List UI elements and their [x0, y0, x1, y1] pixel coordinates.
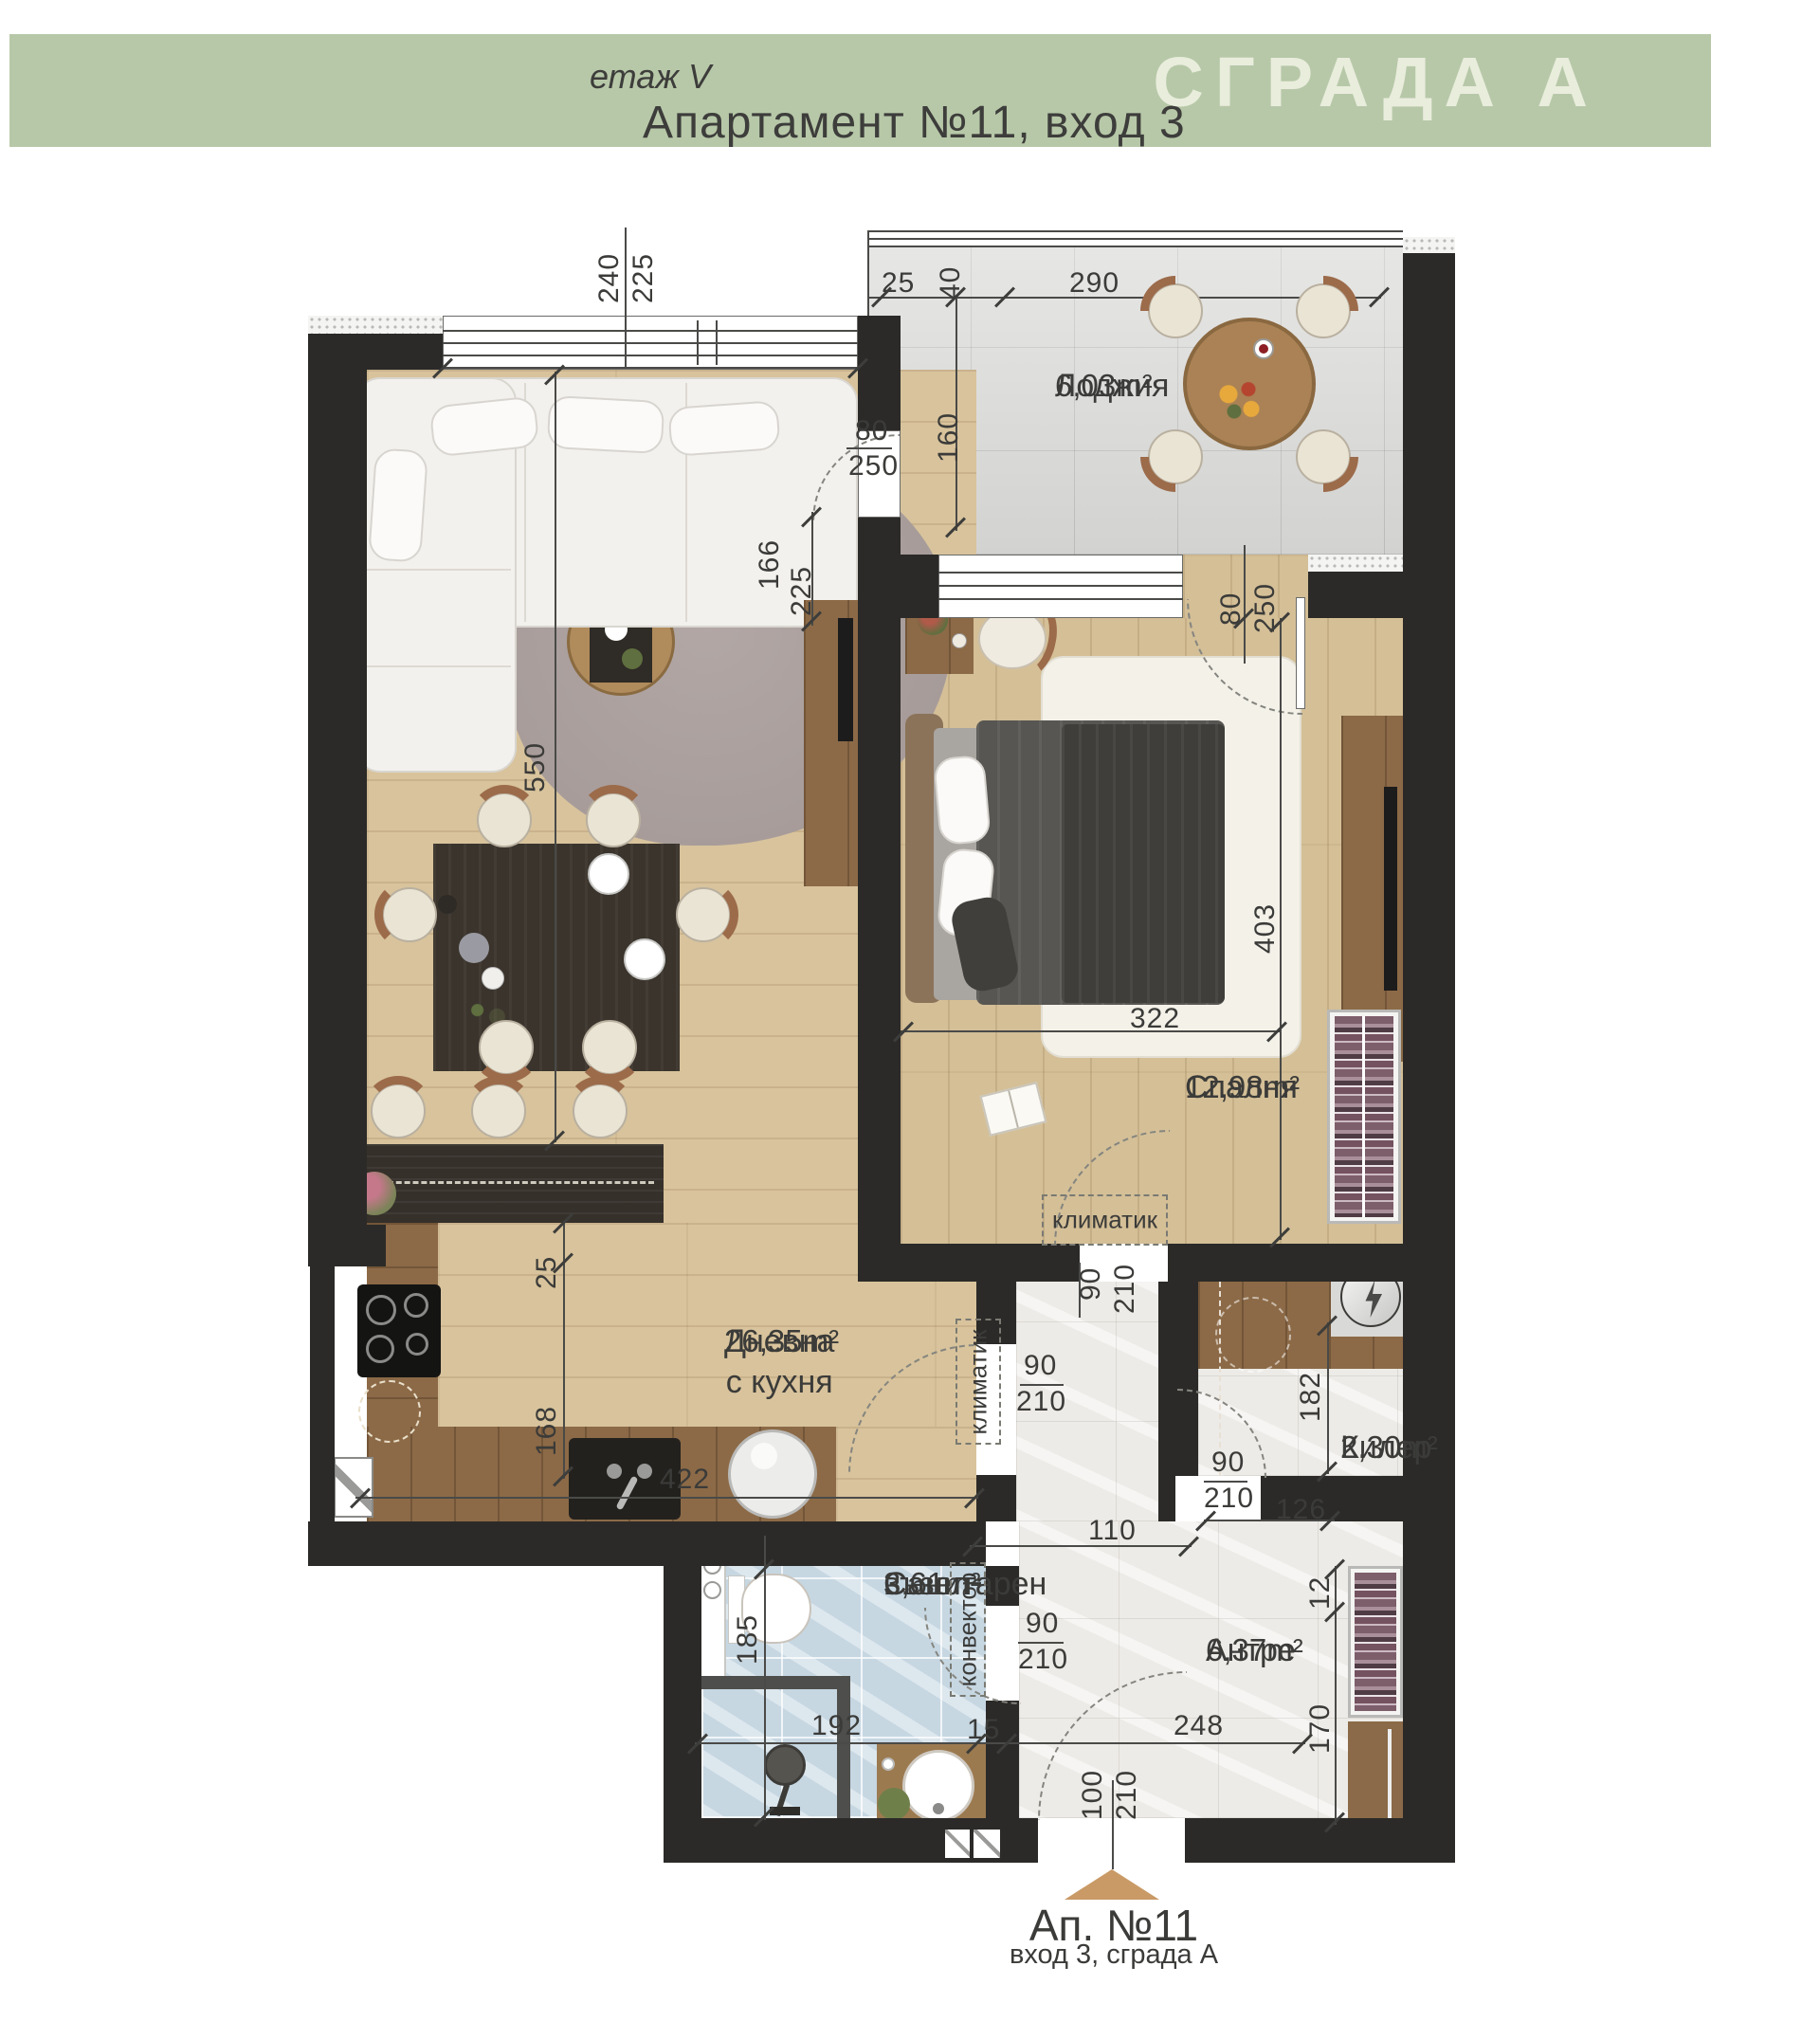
room-area: 6,37m²	[1206, 1630, 1303, 1671]
dimension-label: 25	[533, 1256, 561, 1289]
wine	[1259, 344, 1268, 354]
ac-bedroom-box: климатик	[1042, 1194, 1168, 1246]
dimension-label: 12	[1306, 1576, 1335, 1610]
room-area: 2,30m²	[1340, 1428, 1438, 1468]
dimension-label: 210	[1016, 1388, 1066, 1416]
tv-bedroom	[1384, 787, 1397, 991]
dimension-label: 185	[734, 1614, 762, 1665]
room-area: 6,03m²	[1055, 366, 1153, 407]
sink-knob	[637, 1464, 652, 1479]
chair	[573, 1083, 628, 1138]
ln-shape	[901, 1030, 1280, 1032]
sofa-seam	[361, 569, 511, 571]
wall-left	[308, 370, 367, 1225]
dimension-label: 192	[811, 1712, 862, 1740]
loggia-railing	[867, 238, 1403, 240]
dimension-label: 90	[1026, 1610, 1059, 1638]
wall-kitchen-bath	[308, 1521, 986, 1566]
dining-cup	[482, 967, 504, 990]
closet-decor	[1215, 1297, 1291, 1373]
dimension-label: 248	[1174, 1712, 1224, 1740]
entrance-sub-label: вход 3, сграда А	[1010, 1939, 1218, 1971]
chair	[676, 887, 731, 942]
dimension-label: 90	[1077, 1267, 1105, 1301]
tv-living	[838, 618, 853, 741]
ln-shape	[716, 320, 718, 365]
ln-shape	[697, 320, 699, 365]
ln-shape	[443, 355, 858, 356]
ln-shape	[625, 228, 627, 369]
dimension-label: 100	[1079, 1770, 1107, 1820]
insulation	[308, 316, 443, 334]
dimension-label: 182	[1297, 1372, 1325, 1422]
dimension-label: 15	[967, 1716, 1000, 1744]
wall-bottom	[1185, 1818, 1455, 1863]
ln-shape	[355, 1497, 978, 1499]
loggia-flowers	[1211, 374, 1268, 424]
wall-bedroom-bottom	[1168, 1244, 1403, 1282]
bench-handle	[1388, 1729, 1392, 1818]
dimension-label: 40	[937, 266, 965, 300]
cooktop-burner	[406, 1333, 428, 1356]
loggia-railing	[867, 246, 1403, 247]
insulation	[1403, 237, 1455, 253]
dining-bowl	[459, 933, 489, 963]
coffee-table-plant	[622, 648, 643, 669]
wall-loggia-bedroom	[898, 555, 938, 618]
dimension-label: 80	[855, 417, 888, 446]
threshold	[945, 1830, 970, 1858]
loggia-railing	[867, 230, 1403, 232]
convector-box: конвектор	[950, 1562, 986, 1697]
cooktop-burner	[366, 1335, 394, 1363]
chair	[371, 1083, 426, 1138]
floor-plan-page: етаж V Апартамент №11, вход 3 СГРАДА А	[0, 0, 1820, 2021]
dimension-label: 168	[533, 1406, 561, 1456]
paper-roll	[703, 1581, 721, 1599]
dining-plate	[588, 853, 629, 895]
bed-pillow	[933, 755, 992, 846]
wall-bath-left	[664, 1566, 701, 1818]
ac-bedroom-label: климатик	[1052, 1206, 1157, 1235]
shower-head	[764, 1744, 806, 1786]
counter-decor	[358, 1380, 421, 1443]
lightning-icon	[1360, 1280, 1385, 1318]
chair	[382, 887, 437, 942]
ln-shape	[764, 1536, 766, 1820]
dimension-label: 210	[1018, 1646, 1068, 1674]
entrance-marker	[1065, 1869, 1159, 1900]
sink-knob	[607, 1464, 622, 1479]
water-heater-top	[751, 1443, 777, 1469]
shower-wall	[837, 1676, 850, 1818]
nightstand-cup	[952, 633, 967, 648]
ln-shape	[846, 447, 892, 449]
ln-shape	[970, 1545, 1192, 1547]
ln-shape	[1327, 1322, 1329, 1474]
dimension-label: 126	[1276, 1496, 1326, 1524]
dimension-label: 170	[1306, 1703, 1335, 1754]
bed-blanket-dark	[1062, 724, 1225, 1003]
dimension-label: 110	[1088, 1517, 1137, 1545]
ln-shape	[938, 598, 1183, 600]
sofa-seam	[361, 665, 511, 667]
dimension-label: 160	[935, 412, 963, 463]
wall-right	[1403, 237, 1455, 1863]
wall-left-lower	[310, 1266, 335, 1523]
dimension-label: 322	[1130, 1005, 1180, 1033]
coat-rack-clothes	[1355, 1573, 1396, 1711]
floor-plan: Лоджия6,03m²Спалня12,98m²Дневна с кухня2…	[0, 0, 1820, 2021]
chair	[582, 1020, 637, 1075]
insulation	[1308, 555, 1403, 572]
dimension-label: 422	[660, 1466, 710, 1494]
threshold	[974, 1830, 1000, 1858]
water-heater	[728, 1429, 817, 1519]
ln-shape	[443, 342, 858, 344]
ln-shape	[555, 372, 556, 1142]
cooktop-burner	[366, 1295, 396, 1325]
dimension-label: 250	[848, 452, 899, 481]
dimension-label: 210	[1111, 1264, 1139, 1314]
soap	[882, 1757, 895, 1771]
wall-living-bedroom	[858, 588, 901, 1282]
wall-corridor-left	[976, 1475, 1016, 1521]
bar-counter-dashline	[379, 1181, 654, 1184]
dimension-label: 225	[629, 253, 658, 303]
wall-closet-bottom	[1158, 1476, 1175, 1521]
ln-shape	[938, 585, 1183, 587]
wardrobe-rod	[1362, 1016, 1365, 1217]
dimension-label: 240	[595, 253, 624, 303]
room-area: 26,35m²	[724, 1321, 839, 1362]
ac-living-label: климатик	[964, 1329, 993, 1434]
convector-label: конвектор	[954, 1573, 983, 1687]
chair	[586, 792, 641, 847]
dimension-label: 166	[755, 539, 784, 590]
dimension-label: 225	[788, 566, 816, 616]
dimension-label: 90	[1024, 1352, 1057, 1380]
dimension-label: 550	[521, 742, 550, 792]
ln-shape	[443, 367, 858, 369]
wall-left-notch	[308, 1225, 386, 1266]
sofa-pillow	[547, 395, 665, 454]
sofa-pillow	[368, 447, 428, 563]
room-area: 12,98m²	[1185, 1067, 1300, 1108]
chair	[471, 1083, 526, 1138]
loggia-railing	[867, 230, 869, 316]
ln-shape	[938, 572, 1183, 574]
dimension-label: 90	[1211, 1448, 1245, 1477]
dimension-label: 210	[1204, 1484, 1254, 1513]
shower-wall	[699, 1676, 850, 1689]
cooktop-burner	[404, 1293, 428, 1318]
chair	[479, 1020, 534, 1075]
chair	[477, 792, 532, 847]
dimension-label: 403	[1251, 903, 1280, 954]
shape	[1366, 1280, 1383, 1318]
wall-loggia-living	[858, 518, 901, 588]
ln-shape	[443, 330, 858, 332]
dimension-label: 290	[1069, 269, 1119, 298]
sofa-pillow	[667, 400, 780, 457]
wall-bedroom-bottom	[898, 1244, 1080, 1282]
dining-plate	[624, 938, 665, 980]
ac-living-box: климатик	[955, 1319, 1001, 1445]
shoe-bench	[1348, 1721, 1403, 1826]
bath-faucet	[933, 1803, 944, 1814]
bath-plant	[878, 1788, 910, 1820]
dimension-label: 210	[1113, 1770, 1141, 1820]
